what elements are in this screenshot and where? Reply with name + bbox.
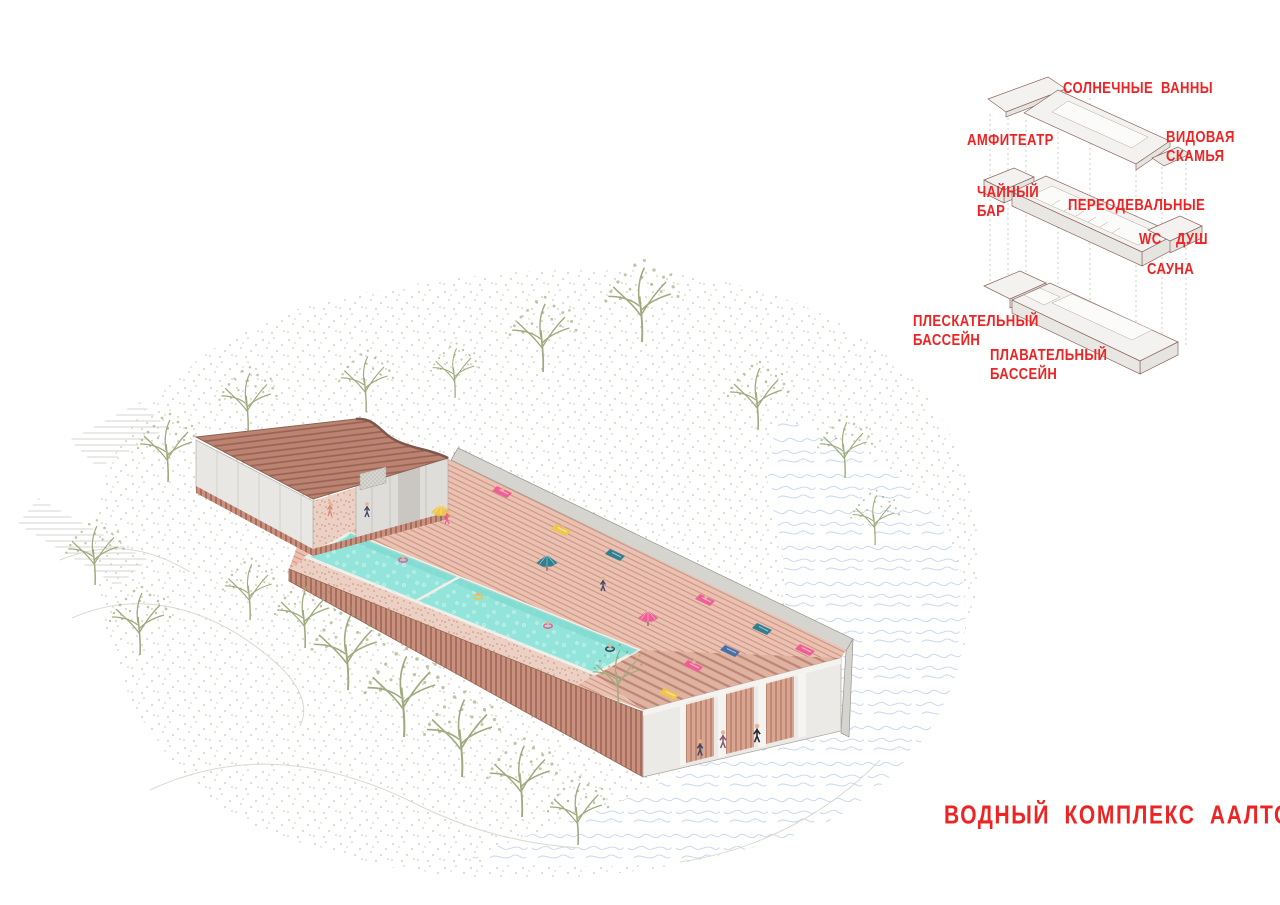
annotation-splash-pool: ПЛЕСКАТЕЛЬНЫЙБАССЕЙН (913, 312, 1039, 350)
architectural-drawing-sheet: ВОДНЫЙ КОМПЛЕКС ААЛТО СОЛНЕЧНЫЕ ВАННЫАМФ… (0, 0, 1280, 905)
annotation-swimming-pool: ПЛАВАТЕЛЬНЫЙБАССЕЙН (990, 346, 1107, 384)
annotation-amphitheater: АМФИТЕАТР (967, 131, 1054, 150)
annotation-view-bench: ВИДОВАЯСКАМЬЯ (1166, 128, 1235, 166)
annotation-changing-rooms: ПЕРЕОДЕВАЛЬНЫЕ (1068, 196, 1205, 215)
annotation-sun-baths: СОЛНЕЧНЫЕ ВАННЫ (1063, 79, 1213, 98)
annotation-shower: ДУШ (1176, 230, 1208, 249)
site-plan-illustration (0, 0, 1280, 905)
drawing-title: ВОДНЫЙ КОМПЛЕКС ААЛТО (944, 801, 1280, 831)
annotation-sauna: САУНА (1147, 260, 1194, 279)
annotation-tea-bar: ЧАЙНЫЙБАР (977, 183, 1039, 221)
annotation-wc: WC (1139, 230, 1162, 249)
